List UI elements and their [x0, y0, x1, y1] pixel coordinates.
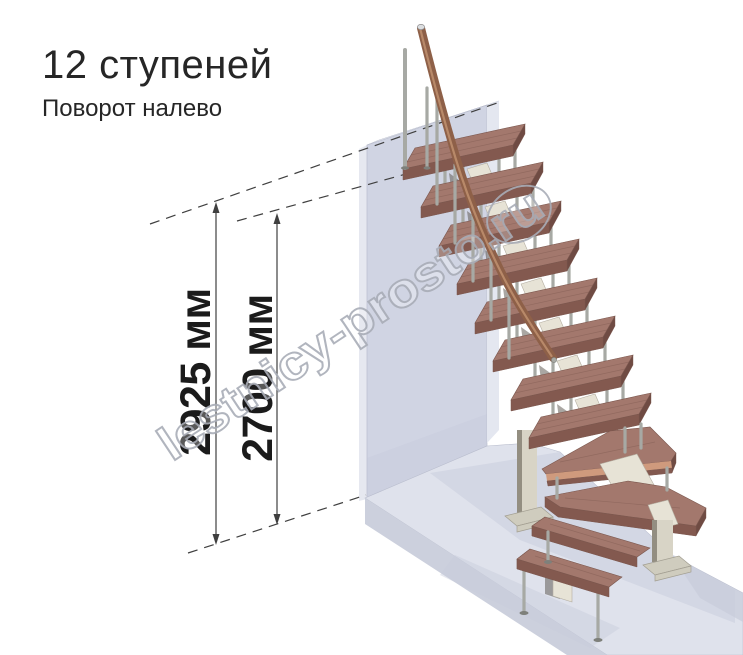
title-block: 12 ступеней Поворот налево: [42, 44, 272, 123]
dimension-total-height: 2925 мм: [172, 202, 220, 545]
staircase-diagram-page: 2925 мм 2700 мм lestnicy-prosto.ru 12 ст…: [0, 0, 743, 655]
page-subtitle: Поворот налево: [42, 95, 272, 123]
page-title: 12 ступеней: [42, 44, 272, 86]
handrail-top-cap: [417, 24, 424, 29]
handrail-end-cap: [551, 357, 556, 362]
